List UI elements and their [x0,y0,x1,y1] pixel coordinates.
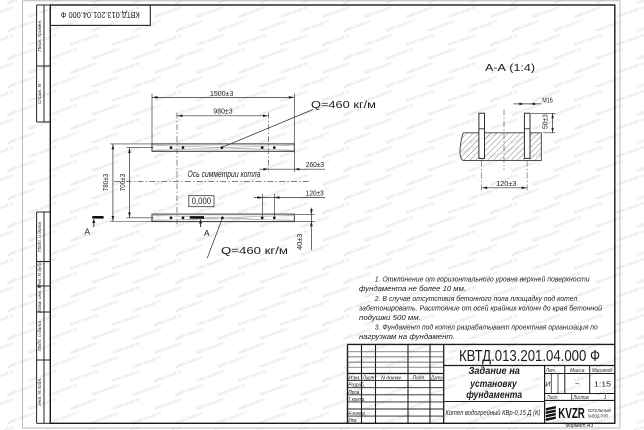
svg-text:Масса: Масса [570,368,585,374]
svg-text:Лист: Лист [362,375,374,381]
svg-text:50±3: 50±3 [543,114,550,129]
svg-text:Подп. и дата: Подп. и дата [37,221,43,251]
svg-text:–: – [575,380,579,387]
svg-text:N докум.: N докум. [381,375,402,381]
svg-text:Инв. N подл.: Инв. N подл. [37,378,43,406]
svg-text:1: 1 [604,395,607,401]
svg-text:КВТД.013.201.04.000 Ф: КВТД.013.201.04.000 Ф [61,10,140,19]
svg-text:0,000: 0,000 [192,196,212,206]
svg-text:260±3: 260±3 [306,160,324,169]
svg-text:40±3: 40±3 [295,234,304,251]
svg-text:Задание на: Задание на [468,366,520,377]
svg-text:Ось симметрии котла: Ось симметрии котла [188,169,261,179]
svg-text:М16: М16 [542,96,553,105]
svg-text:установку: установку [469,379,517,390]
svg-text:120±3: 120±3 [496,179,516,188]
svg-text:Масштаб: Масштаб [592,368,613,374]
svg-text:фундамента не более 10 мм.: фундамента не более 10 мм. [359,284,466,293]
svg-text:А-А (1:4): А-А (1:4) [485,63,535,74]
svg-text:1. Отклонение от горизонтально: 1. Отклонение от горизонтального уровня … [375,275,590,284]
svg-text:Н.контр.: Н.контр. [348,411,366,417]
svg-text:Дата: Дата [430,375,442,381]
svg-text:Утв.: Утв. [348,418,357,424]
svg-text:Взам. инв. N: Взам. инв. N [37,285,43,313]
svg-text:КОТЕЛЬНЫЙ: КОТЕЛЬНЫЙ [588,408,612,413]
svg-text:Справ. N: Справ. N [37,83,43,104]
svg-text:Q=460 кг/м: Q=460 кг/м [311,100,376,111]
svg-text:2. В случае отсутствия бетонно: 2. В случае отсутствия бетонного пола пл… [374,294,578,303]
svg-text:3. Фундамент под котел разраба: 3. Фундамент под котел разрабатывает про… [375,322,599,331]
svg-text:700±3: 700±3 [118,174,127,192]
svg-text:фундамента: фундамента [466,389,522,401]
svg-text:Формат А3: Формат А3 [565,423,594,429]
svg-text:Лист: Лист [546,395,557,401]
svg-text:120±3: 120±3 [306,189,324,198]
svg-text:1500±3: 1500±3 [210,89,234,98]
svg-text:забетонировать. Расстояние от: забетонировать. Расстояние от осей крайн… [358,304,603,313]
svg-text:нагрузкам на фундамент.: нагрузкам на фундамент. [359,332,455,341]
svg-text:Подп.: Подп. [413,375,426,381]
svg-text:Котел водогрейный КВр-0,15 Д (: Котел водогрейный КВр-0,15 Д (К) [445,409,540,417]
svg-text:KVZR: KVZR [558,406,585,422]
svg-text:А: А [204,228,210,238]
svg-text:ЗАВОД-РЭП: ЗАВОД-РЭП [588,414,609,419]
svg-text:Т.контр.: Т.контр. [348,397,365,403]
svg-text:Инв. N дубл.: Инв. N дубл. [37,260,43,288]
svg-text:780±3: 780±3 [101,174,110,192]
svg-text:А: А [84,227,90,237]
svg-text:1:15: 1:15 [594,379,611,388]
svg-text:Изм.: Изм. [348,375,361,381]
svg-text:Лит.: Лит. [545,368,556,374]
svg-text:Подп. и дата: Подп. и дата [37,321,43,351]
svg-text:980±3: 980±3 [213,107,232,116]
svg-text:КВТД.013.201.04.000 Ф: КВТД.013.201.04.000 Ф [459,348,600,365]
svg-text:Разраб.: Разраб. [348,383,365,389]
svg-text:Q=460 кг/м: Q=460 кг/м [221,246,288,257]
svg-text:Перв. примен.: Перв. примен. [37,20,43,52]
svg-text:Листов: Листов [572,395,589,401]
svg-text:подушки 500 мм.: подушки 500 мм. [359,313,421,322]
svg-text:Пров.: Пров. [348,390,360,396]
